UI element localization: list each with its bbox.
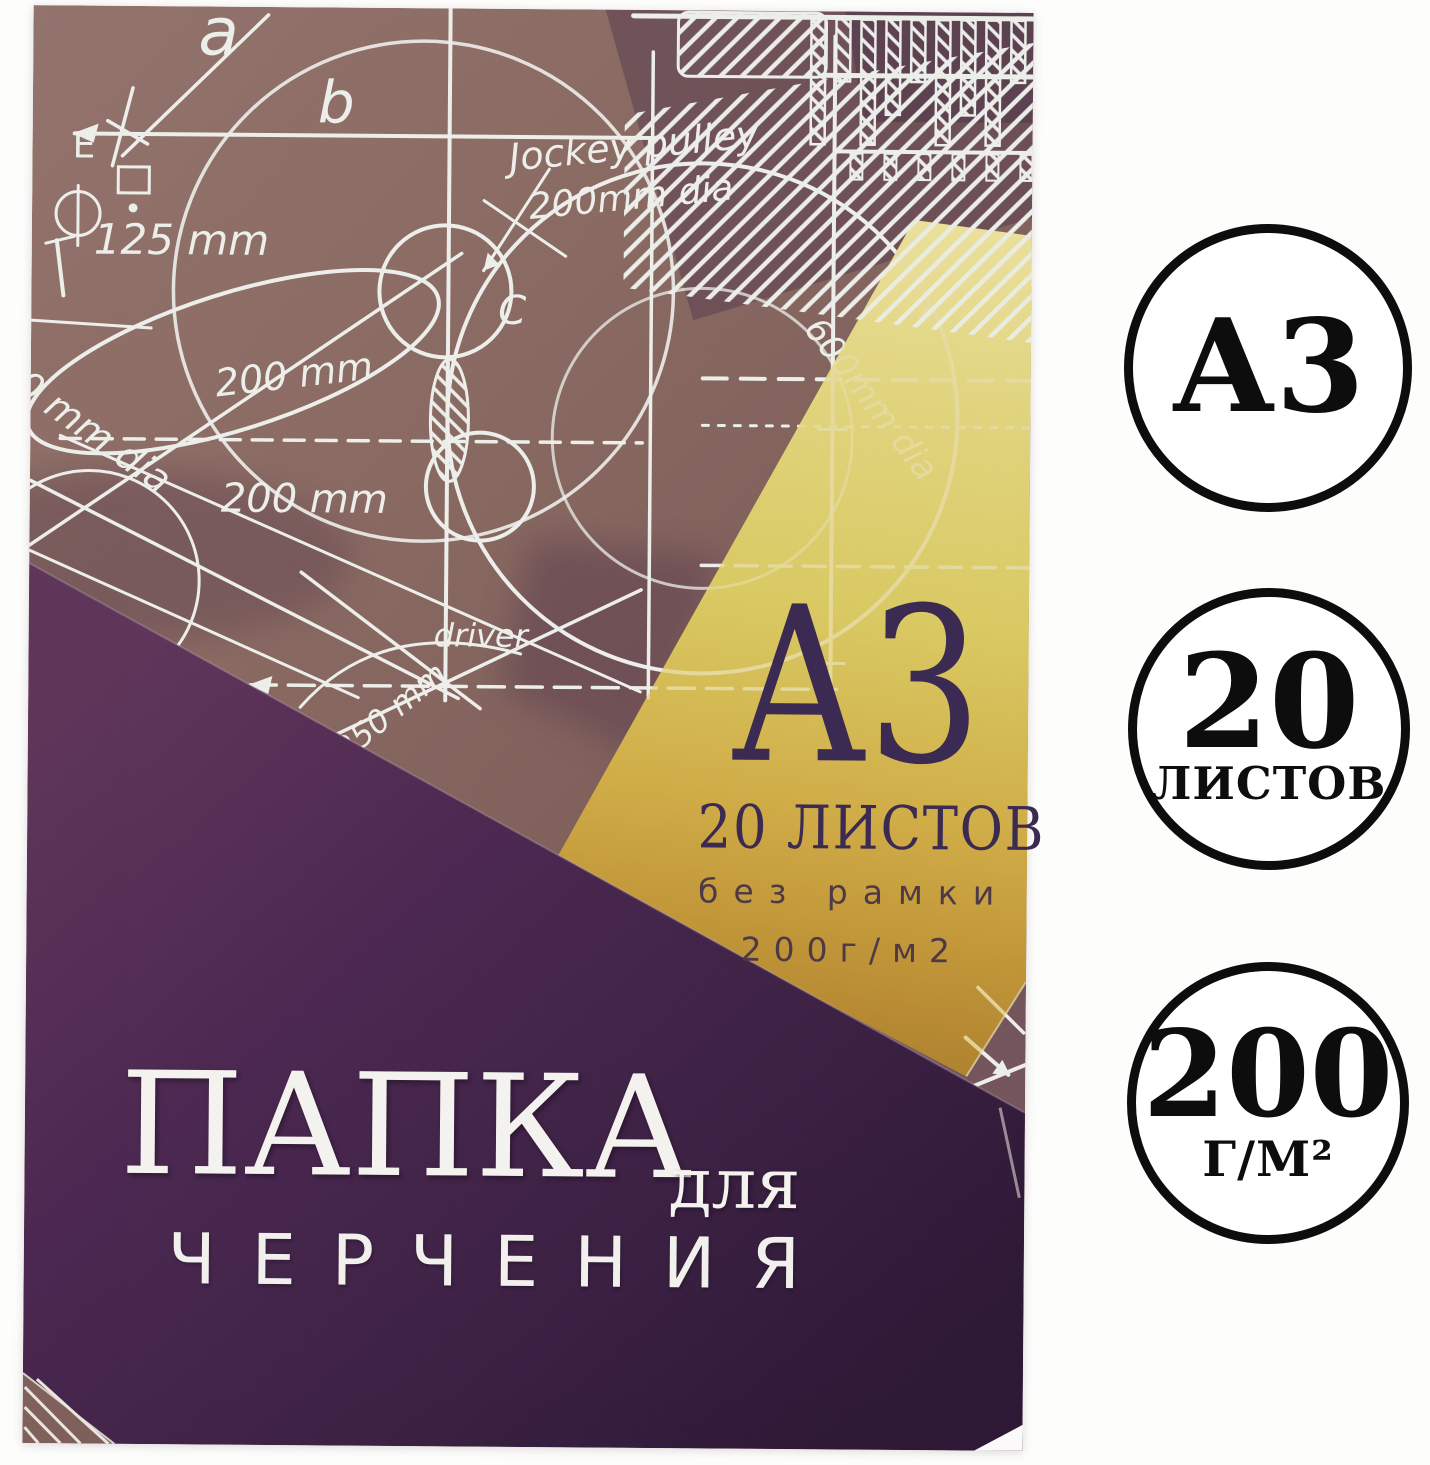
cover-frame-note: без рамки: [682, 874, 1014, 910]
cover-title-preposition: для: [664, 1148, 805, 1219]
cover-density-label: 200г/м2: [681, 932, 1011, 968]
cover-subtitle: ЧЕРЧЕНИЯ: [124, 1224, 861, 1300]
cover-title: ПАПКА: [119, 1054, 650, 1200]
badge-density-unit: Г/М²: [1202, 1130, 1333, 1188]
cover-format-label: А3: [730, 578, 967, 795]
badge-density: 200 Г/М²: [1127, 962, 1409, 1244]
badge-sheet-count: 20 ЛИСТОВ: [1128, 588, 1410, 870]
folder-cover: а b E 125 mm 200 mm 200 mm 0 mm dia C Jo…: [22, 5, 1033, 1451]
product-photo: а b E 125 mm 200 mm 200 mm 0 mm dia C Jo…: [0, 0, 1430, 1465]
badge-format: А3: [1124, 224, 1412, 512]
badge-format-value: А3: [1171, 307, 1364, 429]
badge-sheet-count-value: 20: [1179, 640, 1360, 764]
badge-density-value: 200: [1143, 1018, 1394, 1132]
badge-sheet-count-unit: ЛИСТОВ: [1152, 757, 1387, 810]
cover-sheets-label: 20 ЛИСТОВ: [697, 797, 997, 859]
